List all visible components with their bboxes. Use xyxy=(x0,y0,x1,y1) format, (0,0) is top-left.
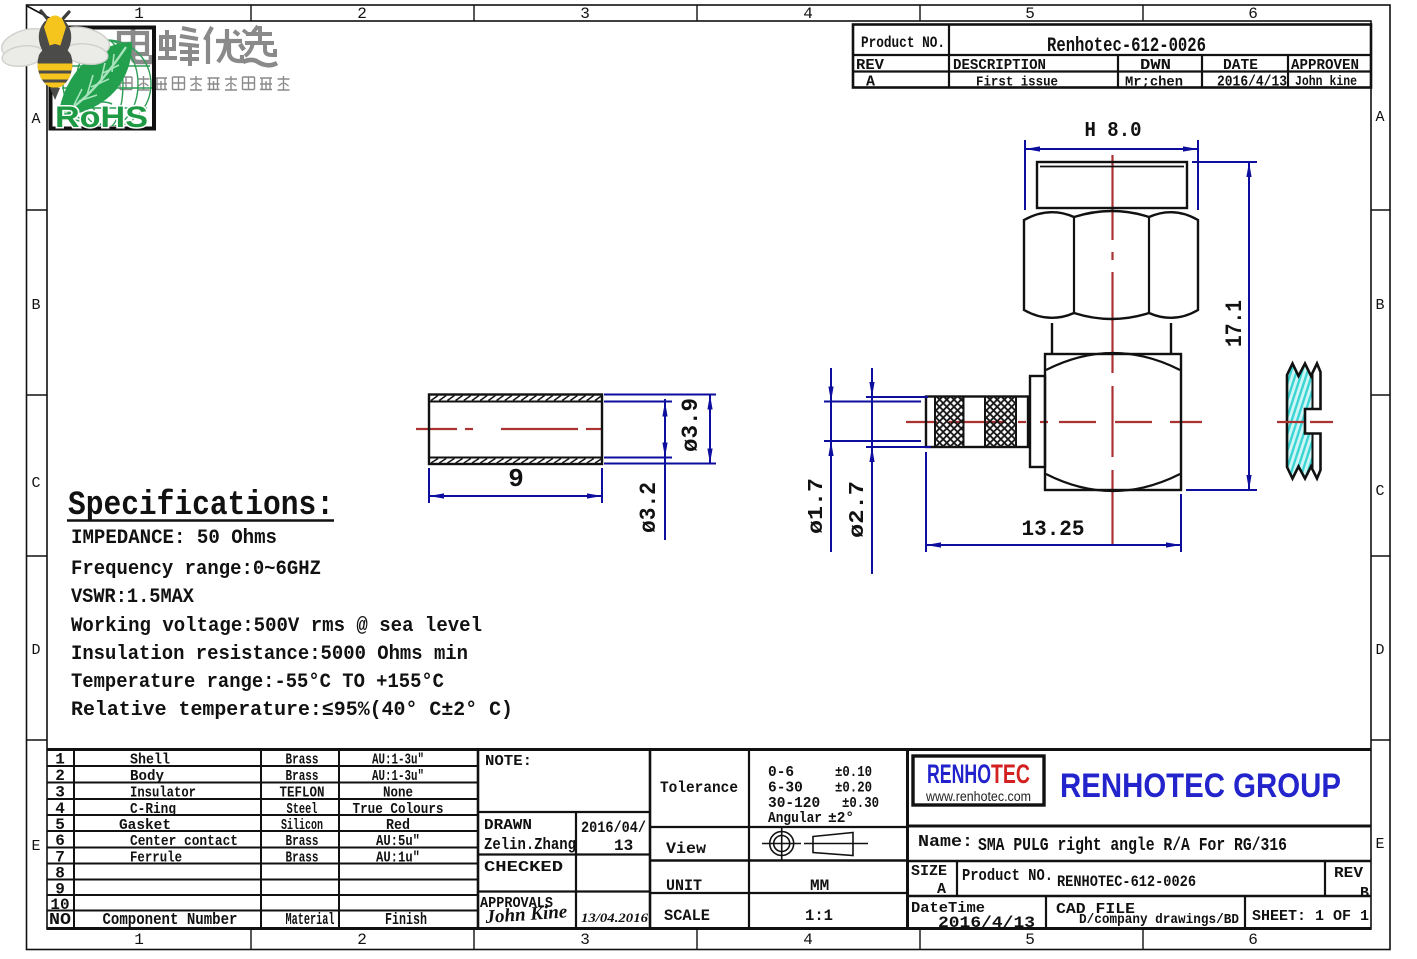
svg-text:2016/4/13: 2016/4/13 xyxy=(938,914,1035,932)
svg-text:UNIT: UNIT xyxy=(666,877,702,895)
svg-text:AU:1-3u": AU:1-3u" xyxy=(372,768,424,785)
svg-text:SHEET: 1 OF 1: SHEET: 1 OF 1 xyxy=(1252,908,1369,925)
svg-text:4: 4 xyxy=(803,931,813,949)
svg-text:Red: Red xyxy=(386,817,410,834)
svg-text:Product NO.: Product NO. xyxy=(861,34,945,52)
svg-text:Body: Body xyxy=(130,768,164,785)
svg-text:Center contact: Center contact xyxy=(130,833,238,850)
svg-text:Ferrule: Ferrule xyxy=(130,850,182,867)
svg-text:Brass: Brass xyxy=(286,768,319,785)
svg-text:Material: Material xyxy=(286,911,335,930)
svg-text:Renhotec-612-0026: Renhotec-612-0026 xyxy=(1047,35,1206,58)
svg-text:3: 3 xyxy=(55,784,65,802)
svg-text:13.25: 13.25 xyxy=(1022,517,1085,542)
svg-text:DATE: DATE xyxy=(1223,57,1258,74)
svg-text:±0.20: ±0.20 xyxy=(835,781,872,797)
svg-text:5: 5 xyxy=(1025,931,1035,949)
svg-text:SIZE: SIZE xyxy=(911,863,947,880)
svg-text:1: 1 xyxy=(134,931,144,949)
svg-text:D: D xyxy=(1375,642,1384,659)
svg-text:TEC: TEC xyxy=(991,759,1030,789)
svg-text:REV: REV xyxy=(856,57,884,74)
svg-text:Gasket: Gasket xyxy=(119,817,171,834)
svg-text:13: 13 xyxy=(614,837,633,855)
svg-text:Temperature range:-55°C TO +15: Temperature range:-55°C TO +155°C xyxy=(71,671,444,694)
svg-text:Component Number: Component Number xyxy=(103,911,238,930)
svg-text:ø2.7: ø2.7 xyxy=(847,481,870,538)
svg-text:AU:1u": AU:1u" xyxy=(376,850,420,867)
svg-text:Relative temperature:≤95%(40°: Relative temperature:≤95%(40° C±2° C) xyxy=(71,699,513,722)
svg-text:0-6: 0-6 xyxy=(768,765,794,781)
svg-text:3: 3 xyxy=(580,931,590,949)
svg-text:APPROVEN: APPROVEN xyxy=(1291,57,1359,74)
svg-text:A: A xyxy=(866,74,875,91)
svg-text:AU:5u": AU:5u" xyxy=(376,833,420,850)
svg-text:Mr;chen: Mr;chen xyxy=(1125,75,1183,91)
svg-text:H 8.0: H 8.0 xyxy=(1085,120,1142,143)
svg-text:6: 6 xyxy=(1248,5,1258,23)
svg-text:RoHS: RoHS xyxy=(55,101,148,134)
svg-text:±2°: ±2° xyxy=(828,811,854,827)
svg-text:Product NO.: Product NO. xyxy=(962,867,1053,886)
svg-text:RENHOTEC GROUP: RENHOTEC GROUP xyxy=(1060,767,1341,805)
svg-text:A: A xyxy=(1375,109,1384,126)
svg-text:ø1.7: ø1.7 xyxy=(806,478,829,534)
svg-text:First issue: First issue xyxy=(976,75,1058,91)
svg-text:E: E xyxy=(31,838,40,855)
svg-text:True Colours: True Colours xyxy=(353,801,444,818)
svg-text:TEFLON: TEFLON xyxy=(280,785,325,802)
svg-text:Finish: Finish xyxy=(385,911,427,930)
svg-text:A: A xyxy=(937,881,946,898)
svg-text:13/04.2016: 13/04.2016 xyxy=(581,910,649,925)
svg-text:5: 5 xyxy=(1025,5,1035,23)
svg-text:NOTE:: NOTE: xyxy=(485,753,532,770)
svg-text:ø3.9: ø3.9 xyxy=(678,398,704,452)
svg-text:AU:1-3u": AU:1-3u" xyxy=(372,752,424,769)
svg-text:Insulator: Insulator xyxy=(130,785,196,802)
svg-text:2016/4/13: 2016/4/13 xyxy=(1217,74,1287,91)
svg-text:Steel: Steel xyxy=(287,801,318,818)
svg-text:DESCRIPTION: DESCRIPTION xyxy=(953,57,1046,74)
svg-text:Working voltage:500V rms @ sea: Working voltage:500V rms @ sea level xyxy=(71,615,482,638)
svg-text:C: C xyxy=(31,475,40,492)
svg-text:CHECKED: CHECKED xyxy=(484,859,563,876)
svg-text:±0.30: ±0.30 xyxy=(842,796,879,812)
svg-text:www.renhotec.com: www.renhotec.com xyxy=(925,789,1031,804)
svg-text:Frequency range:0~6GHZ: Frequency range:0~6GHZ xyxy=(71,558,321,581)
svg-text:IMPEDANCE: 50 Ohms: IMPEDANCE: 50 Ohms xyxy=(71,527,277,550)
svg-text:C-Ring: C-Ring xyxy=(130,801,176,818)
svg-text:Insulation resistance:5000 Ohm: Insulation resistance:5000 Ohms min xyxy=(71,643,468,666)
svg-text:Tolerance: Tolerance xyxy=(660,779,738,797)
svg-text:John kine: John kine xyxy=(1295,74,1357,90)
svg-text:Brass: Brass xyxy=(286,833,319,850)
svg-text:SCALE: SCALE xyxy=(664,907,710,925)
svg-text:Name:: Name: xyxy=(918,833,973,852)
svg-text:30-120: 30-120 xyxy=(768,796,820,812)
svg-text:D: D xyxy=(31,642,40,659)
svg-text:3: 3 xyxy=(580,5,590,23)
svg-text:Shell: Shell xyxy=(130,752,170,769)
svg-text:B: B xyxy=(1360,885,1369,902)
svg-text:Brass: Brass xyxy=(286,752,319,769)
svg-text:Angular: Angular xyxy=(768,811,822,827)
svg-text:Zelin.Zhang: Zelin.Zhang xyxy=(484,836,576,855)
svg-text:6-30: 6-30 xyxy=(768,781,803,797)
svg-text:2: 2 xyxy=(357,5,367,23)
svg-text:Silicon: Silicon xyxy=(281,817,323,834)
svg-text:E: E xyxy=(1375,836,1384,853)
svg-text:2: 2 xyxy=(55,767,65,785)
svg-text:Brass: Brass xyxy=(286,850,319,867)
svg-text:±0.10: ±0.10 xyxy=(835,765,872,781)
svg-text:B: B xyxy=(31,297,40,314)
svg-text:RENHO: RENHO xyxy=(927,759,991,789)
svg-text:C: C xyxy=(1375,483,1384,500)
svg-text:6: 6 xyxy=(55,832,65,850)
svg-text:DRAWN: DRAWN xyxy=(484,817,532,834)
svg-text:17.1: 17.1 xyxy=(1222,300,1248,347)
svg-text:A: A xyxy=(31,111,40,128)
svg-text:SMA PULG right angle R/A For R: SMA PULG right angle R/A For RG/316 xyxy=(978,836,1287,856)
svg-text:1: 1 xyxy=(134,5,144,23)
svg-text:View: View xyxy=(666,840,706,858)
svg-text:2016/04/: 2016/04/ xyxy=(581,819,646,837)
svg-text:REV: REV xyxy=(1334,865,1363,882)
svg-text:2: 2 xyxy=(357,931,367,949)
svg-text:1:1: 1:1 xyxy=(805,907,833,925)
svg-text:B: B xyxy=(1375,297,1384,314)
svg-text:1: 1 xyxy=(55,751,65,769)
svg-text:ø3.2: ø3.2 xyxy=(636,482,662,533)
svg-text:RENHOTEC-612-0026: RENHOTEC-612-0026 xyxy=(1057,873,1196,891)
svg-text:MM: MM xyxy=(810,877,829,895)
svg-text:6: 6 xyxy=(1248,931,1258,949)
svg-text:None: None xyxy=(383,785,413,802)
svg-text:VSWR:1.5MAX: VSWR:1.5MAX xyxy=(71,586,194,609)
svg-text:NO: NO xyxy=(49,911,71,930)
svg-text:4: 4 xyxy=(803,5,813,23)
svg-text:D/company drawings/BD: D/company drawings/BD xyxy=(1079,912,1239,928)
svg-text:9: 9 xyxy=(508,464,524,494)
svg-text:DWN: DWN xyxy=(1140,57,1171,74)
